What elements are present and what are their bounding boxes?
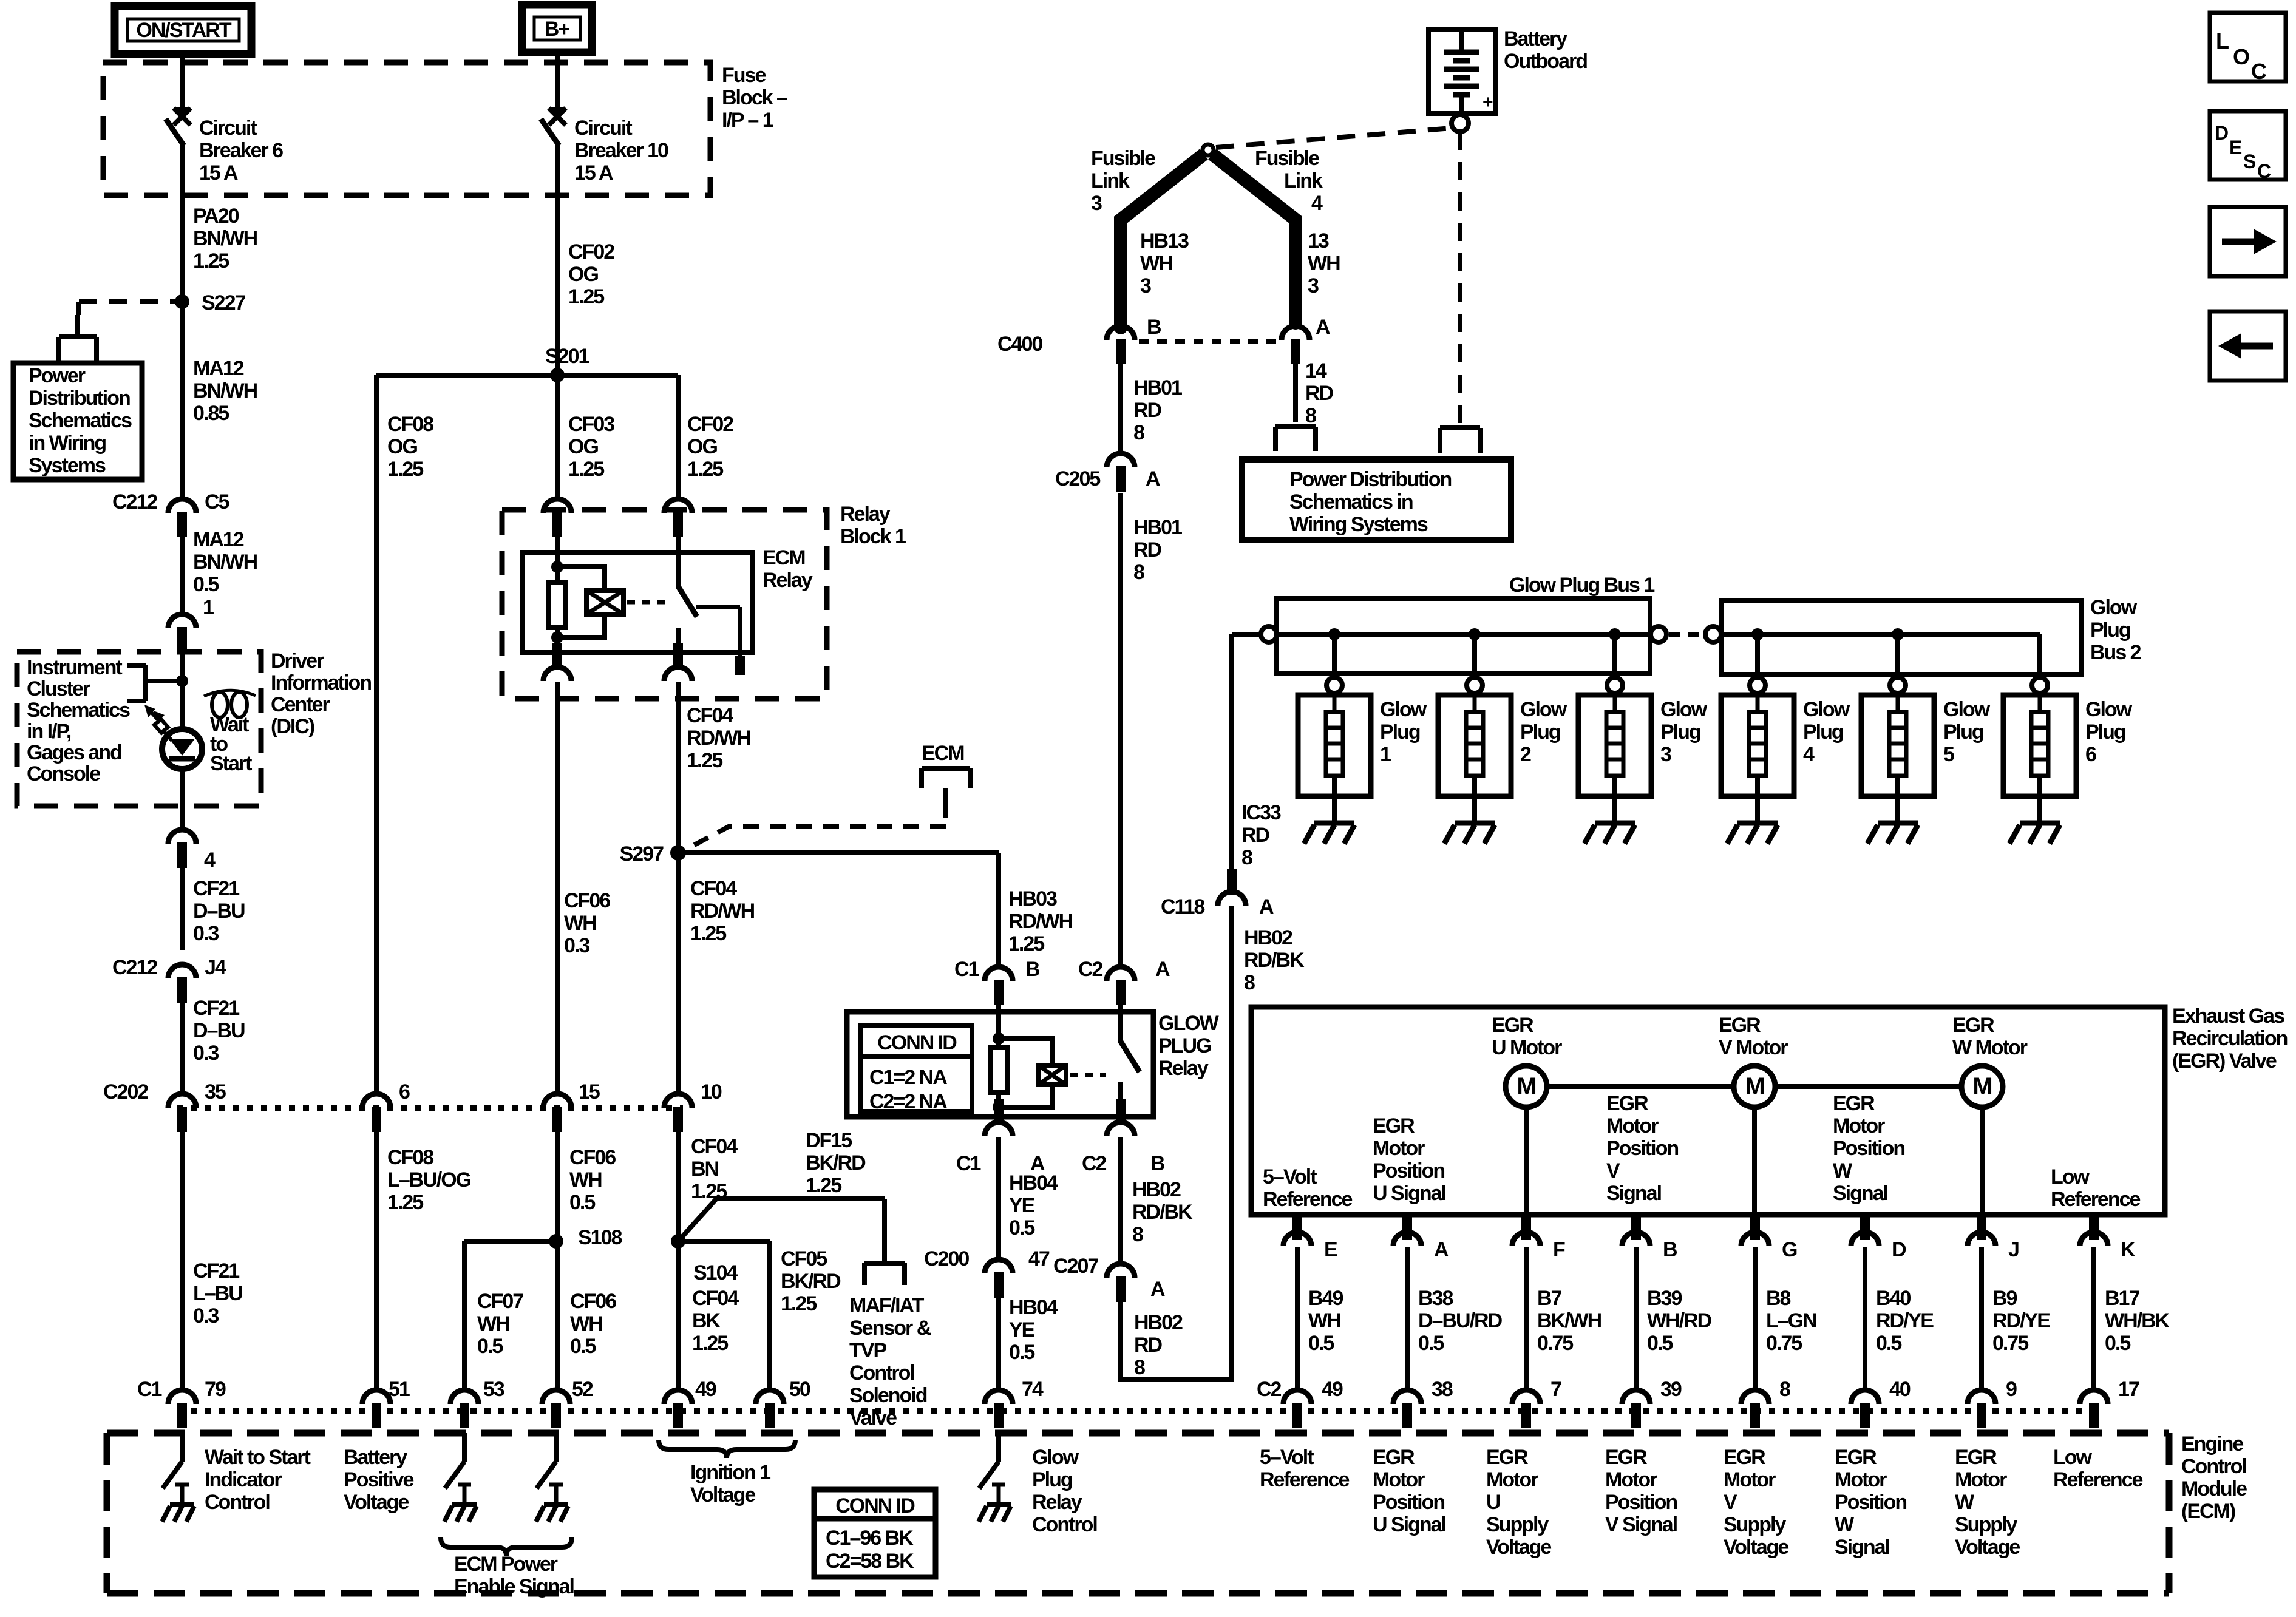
svg-text:0.3: 0.3	[564, 934, 589, 957]
svg-text:Fusible: Fusible	[1255, 147, 1319, 170]
svg-text:CF06: CF06	[564, 889, 610, 912]
svg-text:WH: WH	[1308, 252, 1340, 275]
svg-text:C212: C212	[112, 956, 157, 979]
svg-text:0.5: 0.5	[569, 1191, 595, 1214]
svg-text:RD: RD	[1241, 824, 1270, 847]
svg-text:EGR: EGR	[1833, 1092, 1875, 1115]
svg-text:WH: WH	[477, 1312, 509, 1335]
svg-text:M: M	[1972, 1073, 1991, 1100]
svg-text:1.25: 1.25	[687, 749, 722, 772]
svg-text:WH/BK: WH/BK	[2105, 1309, 2170, 1332]
svg-text:5–Volt: 5–Volt	[1263, 1165, 1317, 1188]
svg-text:Motor: Motor	[1486, 1468, 1538, 1491]
svg-text:DF15: DF15	[806, 1129, 852, 1152]
svg-text:YE: YE	[1009, 1318, 1035, 1341]
svg-text:Low: Low	[2051, 1165, 2090, 1188]
svg-text:HB01: HB01	[1133, 516, 1182, 539]
svg-text:B+: B+	[545, 18, 570, 41]
svg-text:C2: C2	[1078, 958, 1103, 981]
svg-text:C212: C212	[112, 490, 157, 514]
svg-text:1.25: 1.25	[193, 249, 229, 273]
svg-text:40: 40	[1889, 1378, 1911, 1401]
svg-text:B17: B17	[2105, 1287, 2139, 1310]
svg-text:C2: C2	[1257, 1378, 1282, 1401]
svg-text:Glow: Glow	[1520, 698, 1567, 721]
svg-text:CF08: CF08	[387, 1146, 433, 1169]
svg-text:3: 3	[1091, 192, 1102, 215]
svg-text:15 A: 15 A	[574, 161, 613, 185]
svg-text:B40: B40	[1876, 1287, 1911, 1310]
svg-text:1: 1	[1380, 743, 1391, 766]
svg-text:Motor: Motor	[1833, 1114, 1885, 1137]
svg-text:Exhaust Gas: Exhaust Gas	[2172, 1005, 2284, 1028]
svg-text:PA20: PA20	[193, 205, 239, 228]
svg-text:in Wiring: in Wiring	[29, 432, 106, 455]
svg-text:CF06: CF06	[569, 1146, 616, 1169]
svg-text:Motor: Motor	[1724, 1468, 1776, 1491]
svg-text:0.5: 0.5	[477, 1335, 503, 1358]
svg-text:8: 8	[1241, 846, 1252, 869]
svg-text:S: S	[2243, 151, 2256, 172]
svg-text:V: V	[1724, 1491, 1737, 1514]
svg-text:O: O	[2233, 44, 2249, 69]
svg-text:RD/WH: RD/WH	[1008, 910, 1073, 933]
svg-text:0.3: 0.3	[193, 922, 219, 945]
svg-text:HB04: HB04	[1009, 1296, 1058, 1319]
svg-text:Plug: Plug	[1520, 720, 1560, 744]
svg-text:Information: Information	[271, 671, 371, 694]
svg-text:B: B	[1147, 316, 1161, 339]
svg-text:BN/WH: BN/WH	[193, 379, 257, 402]
svg-text:8: 8	[1779, 1378, 1790, 1401]
svg-text:Relay: Relay	[1032, 1491, 1082, 1514]
svg-text:Glow Plug Bus 1: Glow Plug Bus 1	[1509, 574, 1654, 597]
svg-text:4: 4	[1311, 192, 1323, 215]
svg-text:HB03: HB03	[1008, 887, 1057, 910]
svg-text:Start: Start	[210, 752, 252, 775]
svg-text:D: D	[2215, 122, 2228, 144]
svg-text:Reference: Reference	[1263, 1188, 1353, 1211]
svg-text:W Motor: W Motor	[1952, 1036, 2028, 1059]
svg-text:OG: OG	[568, 263, 598, 286]
svg-text:Glow: Glow	[1032, 1446, 1079, 1469]
svg-text:Glow: Glow	[1660, 698, 1708, 721]
svg-text:J: J	[2008, 1238, 2019, 1261]
svg-text:CF05: CF05	[781, 1247, 827, 1270]
svg-text:Indicator: Indicator	[205, 1468, 282, 1491]
svg-text:49: 49	[695, 1378, 716, 1401]
svg-text:1.25: 1.25	[781, 1292, 817, 1315]
svg-text:D–BU: D–BU	[193, 1019, 245, 1042]
svg-text:HB02: HB02	[1244, 926, 1292, 949]
svg-text:Motor: Motor	[1955, 1468, 2007, 1491]
svg-text:Voltage: Voltage	[1955, 1536, 2020, 1559]
svg-text:Position: Position	[1833, 1137, 1904, 1160]
svg-text:CF02: CF02	[568, 240, 614, 263]
svg-text:V Motor: V Motor	[1719, 1036, 1788, 1059]
svg-text:EGR: EGR	[1606, 1092, 1648, 1115]
svg-text:W: W	[1835, 1513, 1855, 1536]
svg-text:TVP: TVP	[849, 1339, 886, 1362]
svg-text:C118: C118	[1161, 895, 1204, 918]
svg-text:3: 3	[1660, 743, 1671, 766]
svg-text:1.25: 1.25	[387, 1191, 423, 1214]
svg-text:B: B	[1150, 1152, 1165, 1175]
svg-text:6: 6	[399, 1080, 410, 1103]
svg-text:Control: Control	[1032, 1513, 1097, 1536]
svg-text:K: K	[2121, 1238, 2136, 1261]
svg-text:Control: Control	[849, 1361, 914, 1385]
svg-text:E: E	[2229, 137, 2242, 158]
svg-text:D–BU: D–BU	[193, 900, 245, 923]
svg-text:Circuit: Circuit	[574, 117, 632, 140]
svg-text:RD/YE: RD/YE	[1876, 1309, 1934, 1332]
svg-text:Schematics: Schematics	[29, 409, 132, 432]
svg-text:9: 9	[2006, 1378, 2017, 1401]
svg-text:Motor: Motor	[1373, 1468, 1425, 1491]
svg-text:Plug: Plug	[1803, 720, 1843, 744]
svg-text:4: 4	[1803, 743, 1815, 766]
svg-text:BN/WH: BN/WH	[193, 551, 257, 574]
svg-text:MA12: MA12	[193, 528, 244, 551]
svg-text:C200: C200	[924, 1247, 969, 1270]
svg-text:OG: OG	[387, 435, 417, 458]
svg-text:8: 8	[1305, 404, 1316, 427]
svg-text:Position: Position	[1606, 1137, 1678, 1160]
svg-text:14: 14	[1305, 359, 1327, 382]
svg-text:A: A	[1434, 1238, 1449, 1261]
svg-text:IC33: IC33	[1241, 801, 1281, 824]
svg-text:RD: RD	[1305, 382, 1334, 405]
svg-text:M: M	[1517, 1073, 1535, 1100]
svg-text:Position: Position	[1373, 1491, 1444, 1514]
svg-text:BK/RD: BK/RD	[806, 1151, 866, 1175]
svg-text:HB04: HB04	[1009, 1171, 1058, 1195]
svg-text:Breaker 6: Breaker 6	[199, 139, 283, 162]
svg-text:RD: RD	[1133, 399, 1162, 422]
svg-text:A: A	[1146, 467, 1160, 490]
svg-text:S104: S104	[693, 1261, 738, 1284]
svg-text:HB02: HB02	[1132, 1178, 1181, 1201]
svg-text:U Motor: U Motor	[1492, 1036, 1562, 1059]
svg-text:Glow: Glow	[1380, 698, 1427, 721]
svg-text:CF21: CF21	[193, 1259, 239, 1283]
svg-text:L–BU: L–BU	[193, 1282, 242, 1305]
svg-text:A: A	[1316, 316, 1330, 339]
svg-text:L–GN: L–GN	[1766, 1309, 1816, 1332]
svg-text:50: 50	[789, 1378, 810, 1401]
svg-text:D–BU/RD: D–BU/RD	[1418, 1309, 1503, 1332]
svg-text:EGR: EGR	[1605, 1446, 1647, 1469]
svg-text:Engine: Engine	[2181, 1432, 2243, 1456]
svg-text:Outboard: Outboard	[1504, 50, 1587, 73]
svg-text:EGR: EGR	[1952, 1014, 1994, 1037]
svg-text:W: W	[1955, 1491, 1975, 1514]
svg-text:Motor: Motor	[1835, 1468, 1887, 1491]
svg-text:(DIC): (DIC)	[271, 715, 314, 738]
svg-text:RD/BK: RD/BK	[1132, 1201, 1193, 1224]
svg-text:C202: C202	[103, 1080, 148, 1103]
svg-text:Power: Power	[29, 364, 86, 387]
svg-text:0.85: 0.85	[193, 402, 229, 425]
svg-text:EGR: EGR	[1373, 1446, 1415, 1469]
svg-text:Position: Position	[1605, 1491, 1677, 1514]
svg-text:Wiring Systems: Wiring Systems	[1289, 513, 1428, 536]
svg-text:1.25: 1.25	[387, 458, 423, 481]
svg-text:C1: C1	[956, 1152, 981, 1175]
svg-text:Link: Link	[1284, 169, 1323, 192]
svg-text:0.5: 0.5	[1647, 1332, 1673, 1355]
svg-text:A: A	[1155, 958, 1170, 981]
svg-text:B: B	[1663, 1238, 1677, 1261]
svg-text:CF03: CF03	[568, 413, 614, 436]
svg-text:C2: C2	[1082, 1152, 1107, 1175]
svg-text:B7: B7	[1537, 1287, 1562, 1310]
svg-text:Supply: Supply	[1724, 1513, 1786, 1536]
svg-text:BK: BK	[692, 1309, 721, 1332]
svg-text:0.5: 0.5	[1009, 1216, 1034, 1239]
svg-text:Driver: Driver	[271, 649, 324, 673]
svg-text:C205: C205	[1055, 467, 1100, 490]
svg-text:4: 4	[204, 849, 216, 872]
svg-text:0.5: 0.5	[1308, 1332, 1334, 1355]
svg-text:+: +	[1483, 92, 1493, 112]
svg-text:13: 13	[1308, 229, 1329, 253]
svg-text:Glow: Glow	[2090, 596, 2138, 619]
svg-text:Motor: Motor	[1605, 1468, 1657, 1491]
svg-text:3: 3	[1140, 274, 1151, 297]
svg-text:Motor: Motor	[1606, 1114, 1659, 1137]
svg-text:YE: YE	[1009, 1194, 1035, 1217]
svg-text:Control: Control	[205, 1491, 270, 1514]
svg-text:Block 1: Block 1	[840, 525, 906, 548]
svg-text:8: 8	[1133, 421, 1144, 444]
svg-text:S201: S201	[545, 345, 589, 368]
svg-text:53: 53	[483, 1378, 504, 1401]
svg-text:PLUG: PLUG	[1158, 1034, 1211, 1057]
svg-text:B9: B9	[1992, 1287, 2017, 1310]
svg-text:ON/START: ON/START	[136, 19, 231, 42]
svg-text:49: 49	[1322, 1378, 1343, 1401]
svg-text:0.5: 0.5	[1009, 1341, 1034, 1364]
svg-text:47: 47	[1028, 1247, 1050, 1270]
svg-text:Signal: Signal	[1835, 1536, 1890, 1559]
svg-text:G: G	[1782, 1238, 1797, 1261]
svg-text:Reference: Reference	[2053, 1468, 2143, 1491]
svg-text:1.25: 1.25	[1008, 932, 1044, 955]
svg-text:Module: Module	[2181, 1477, 2247, 1500]
svg-text:EGR: EGR	[1955, 1446, 1997, 1469]
svg-text:CF21: CF21	[193, 877, 239, 900]
svg-text:CF04: CF04	[687, 704, 733, 727]
svg-text:E: E	[1324, 1238, 1337, 1261]
svg-text:0.5: 0.5	[570, 1335, 596, 1358]
svg-text:CONN ID: CONN ID	[877, 1031, 957, 1054]
svg-text:Schematics: Schematics	[27, 699, 130, 722]
svg-text:Relay: Relay	[840, 503, 891, 526]
svg-text:RD/BK: RD/BK	[1244, 949, 1305, 972]
svg-text:BN/WH: BN/WH	[193, 227, 257, 250]
svg-text:Block –: Block –	[722, 86, 787, 109]
svg-text:HB13: HB13	[1140, 229, 1189, 253]
svg-text:15: 15	[579, 1080, 600, 1103]
svg-text:Circuit: Circuit	[199, 117, 257, 140]
svg-text:Control: Control	[2181, 1455, 2246, 1478]
svg-text:C: C	[2257, 160, 2271, 182]
svg-text:L: L	[2216, 29, 2229, 53]
svg-text:V Signal: V Signal	[1605, 1513, 1677, 1536]
svg-text:Distribution: Distribution	[29, 387, 130, 410]
svg-text:Breaker 10: Breaker 10	[574, 139, 668, 162]
svg-text:CF04: CF04	[690, 877, 737, 900]
svg-text:10: 10	[701, 1080, 722, 1103]
svg-text:Plug: Plug	[2085, 720, 2125, 744]
svg-text:C1–96 BK: C1–96 BK	[826, 1527, 914, 1550]
svg-text:7: 7	[1550, 1378, 1561, 1401]
svg-text:51: 51	[389, 1378, 410, 1401]
svg-text:1.25: 1.25	[690, 922, 726, 945]
svg-text:Battery: Battery	[1504, 27, 1567, 50]
svg-text:CF04: CF04	[691, 1135, 738, 1158]
svg-text:C2=58 BK: C2=58 BK	[826, 1550, 914, 1573]
svg-text:WH: WH	[570, 1312, 602, 1335]
svg-text:0.75: 0.75	[1537, 1332, 1573, 1355]
svg-text:Glow: Glow	[1943, 698, 1991, 721]
svg-text:Schematics in: Schematics in	[1289, 490, 1413, 514]
svg-text:(ECM): (ECM)	[2181, 1500, 2235, 1523]
svg-text:Fusible: Fusible	[1091, 147, 1155, 170]
svg-text:Cluster: Cluster	[27, 677, 90, 700]
svg-text:Relay: Relay	[763, 569, 813, 592]
svg-text:L–BU/OG: L–BU/OG	[387, 1168, 471, 1192]
svg-text:35: 35	[205, 1080, 226, 1103]
svg-text:M: M	[1745, 1073, 1764, 1100]
svg-text:1: 1	[203, 596, 214, 619]
svg-text:CF08: CF08	[387, 413, 433, 436]
svg-text:0.5: 0.5	[2105, 1332, 2130, 1355]
svg-text:CONN ID: CONN ID	[835, 1494, 915, 1517]
svg-text:RD/WH: RD/WH	[690, 900, 755, 923]
svg-text:Position: Position	[1835, 1491, 1906, 1514]
svg-text:B: B	[1025, 958, 1040, 981]
svg-text:6: 6	[2085, 743, 2096, 766]
svg-text:0.5: 0.5	[1418, 1332, 1444, 1355]
svg-text:Low: Low	[2053, 1446, 2093, 1469]
svg-text:Plug: Plug	[1660, 720, 1700, 744]
svg-text:BN: BN	[691, 1158, 719, 1181]
svg-text:C1: C1	[137, 1378, 162, 1401]
svg-text:0.75: 0.75	[1992, 1332, 2028, 1355]
svg-text:S297: S297	[620, 842, 664, 866]
svg-text:U Signal: U Signal	[1373, 1513, 1446, 1536]
svg-text:Recirculation: Recirculation	[2172, 1027, 2288, 1050]
svg-text:ECM: ECM	[922, 742, 964, 765]
svg-text:8: 8	[1244, 971, 1255, 994]
svg-text:1.25: 1.25	[806, 1174, 841, 1197]
svg-text:Fuse: Fuse	[722, 64, 766, 87]
svg-text:C: C	[2251, 59, 2267, 84]
svg-text:BK/RD: BK/RD	[781, 1270, 841, 1293]
svg-text:OG: OG	[568, 435, 598, 458]
svg-text:Power Distribution: Power Distribution	[1289, 468, 1451, 491]
svg-text:C207: C207	[1053, 1255, 1098, 1278]
svg-text:S108: S108	[578, 1226, 622, 1249]
svg-text:U Signal: U Signal	[1373, 1182, 1446, 1205]
svg-text:in I/P,: in I/P,	[27, 720, 71, 743]
svg-text:HB01: HB01	[1133, 376, 1182, 399]
svg-text:Reference: Reference	[1260, 1468, 1350, 1491]
svg-text:3: 3	[1308, 274, 1319, 297]
svg-text:F: F	[1553, 1238, 1565, 1261]
svg-text:0.5: 0.5	[193, 573, 219, 596]
svg-text:(EGR) Valve: (EGR) Valve	[2172, 1049, 2277, 1073]
svg-text:Supply: Supply	[1486, 1513, 1549, 1536]
svg-text:Link: Link	[1091, 169, 1130, 192]
svg-text:Bus 2: Bus 2	[2090, 641, 2141, 664]
svg-text:CF04: CF04	[692, 1287, 739, 1310]
svg-text:EGR: EGR	[1492, 1014, 1533, 1037]
svg-text:B39: B39	[1647, 1287, 1682, 1310]
svg-text:OG: OG	[687, 435, 717, 458]
svg-text:U: U	[1486, 1491, 1500, 1514]
svg-text:Console: Console	[27, 762, 100, 785]
svg-text:Reference: Reference	[2051, 1188, 2141, 1211]
svg-text:8: 8	[1134, 1356, 1145, 1379]
svg-text:WH: WH	[569, 1168, 602, 1192]
svg-text:CF02: CF02	[687, 413, 733, 436]
svg-text:A: A	[1150, 1278, 1165, 1301]
svg-text:8: 8	[1132, 1223, 1143, 1246]
svg-text:C400: C400	[997, 333, 1042, 356]
svg-text:Motor: Motor	[1373, 1137, 1425, 1160]
svg-text:I/P – 1: I/P – 1	[722, 109, 773, 132]
svg-text:CF21: CF21	[193, 997, 239, 1020]
svg-text:Plug: Plug	[2090, 619, 2130, 642]
svg-text:Gages and: Gages and	[27, 741, 121, 764]
svg-text:39: 39	[1660, 1378, 1682, 1401]
svg-text:Instrument: Instrument	[27, 656, 122, 679]
svg-text:1.25: 1.25	[687, 458, 723, 481]
svg-text:ECM: ECM	[763, 546, 805, 569]
svg-text:EGR: EGR	[1724, 1446, 1765, 1469]
svg-text:Voltage: Voltage	[1486, 1536, 1551, 1559]
svg-text:0.3: 0.3	[193, 1304, 219, 1327]
svg-text:38: 38	[1432, 1378, 1453, 1401]
svg-text:RD/YE: RD/YE	[1992, 1309, 2050, 1332]
svg-text:0.75: 0.75	[1766, 1332, 1802, 1355]
svg-text:B38: B38	[1418, 1287, 1453, 1310]
svg-text:79: 79	[205, 1378, 226, 1401]
svg-text:5–Volt: 5–Volt	[1260, 1446, 1314, 1469]
svg-text:Positive: Positive	[344, 1468, 413, 1491]
svg-text:MAF/IAT: MAF/IAT	[849, 1294, 925, 1317]
svg-text:52: 52	[572, 1378, 593, 1401]
svg-text:8: 8	[1133, 561, 1144, 584]
svg-text:Relay: Relay	[1158, 1057, 1209, 1080]
svg-text:WH: WH	[1308, 1309, 1340, 1332]
svg-text:Glow: Glow	[2085, 698, 2133, 721]
svg-text:Wait to Start: Wait to Start	[205, 1446, 311, 1469]
svg-text:C1=2 NA: C1=2 NA	[869, 1066, 947, 1089]
svg-text:Plug: Plug	[1380, 720, 1420, 744]
svg-text:B8: B8	[1766, 1287, 1791, 1310]
svg-text:WH: WH	[1140, 252, 1172, 275]
svg-text:C5: C5	[205, 490, 229, 514]
svg-text:C1: C1	[954, 958, 979, 981]
svg-text:Supply: Supply	[1955, 1513, 2017, 1536]
svg-text:MA12: MA12	[193, 357, 244, 380]
svg-text:HB02: HB02	[1134, 1311, 1183, 1334]
